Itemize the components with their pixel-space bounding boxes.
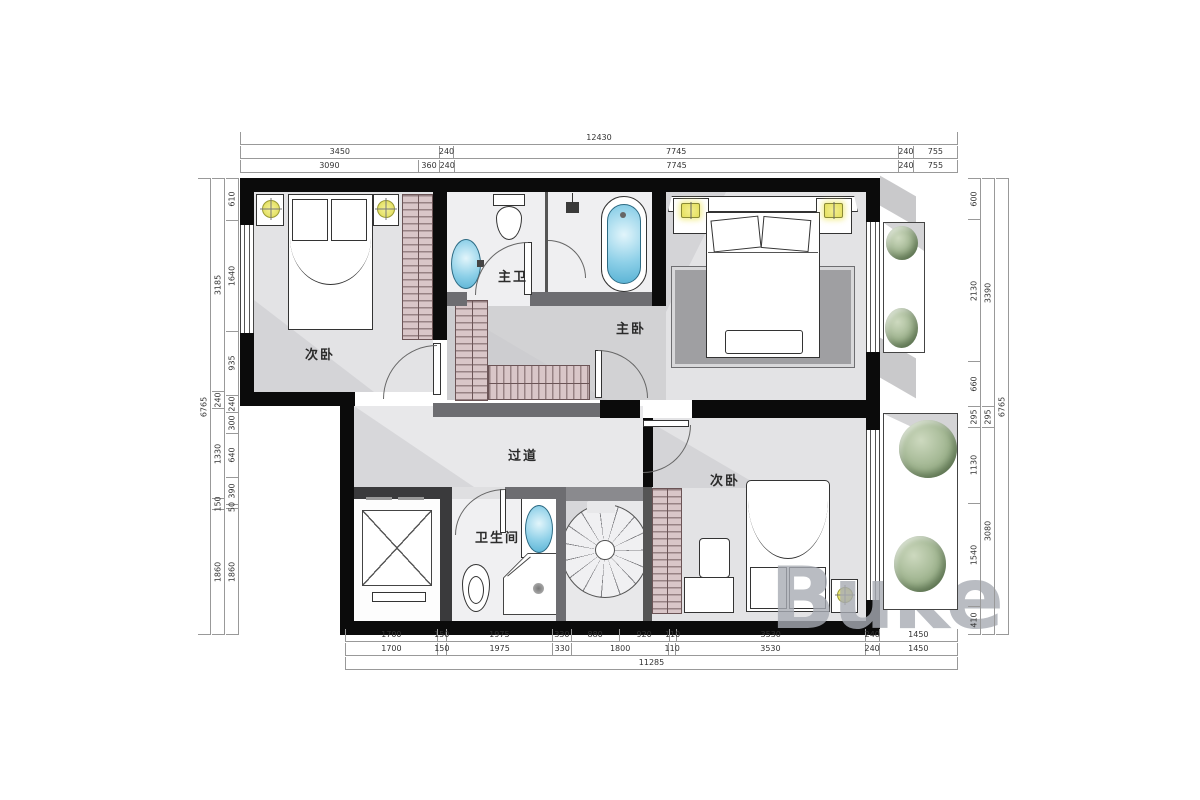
shower-hose: [572, 193, 573, 203]
wall-segment: [866, 352, 880, 430]
dimension-value: 110: [665, 644, 680, 653]
dimension-value: 12430: [586, 133, 611, 142]
dimension-value: 11285: [639, 658, 664, 667]
dimension-value: 1450: [908, 630, 928, 639]
dimension-segment: 1330: [212, 408, 224, 498]
dimension-segment: 330: [552, 629, 571, 641]
dimension-segment: 3390: [982, 178, 994, 406]
dimension-segment: 3530: [676, 629, 865, 641]
wall-segment: [556, 487, 566, 621]
dimension-value: 3080: [984, 521, 993, 541]
dimension-value: 640: [228, 448, 237, 463]
dimension-value: 110: [665, 630, 680, 639]
dimension-value: 240: [864, 644, 879, 653]
chair: [699, 538, 730, 578]
dimension-segment: 920: [619, 629, 669, 641]
wall-segment: [240, 392, 355, 406]
dimension-value: 1330: [214, 443, 223, 463]
room-label-bedroom1: 次卧: [305, 344, 335, 363]
elevator-door-sill: [398, 497, 424, 500]
dim-left-total: 6765: [198, 178, 211, 635]
dimension-segment: 3090: [240, 160, 418, 172]
pillow: [761, 216, 812, 252]
dimension-value: 330: [554, 630, 569, 639]
dimension-value: 1800: [610, 644, 630, 653]
dimension-segment: 11285: [345, 657, 957, 669]
dimension-segment: 240: [898, 160, 913, 172]
dimension-segment: 240: [439, 146, 454, 158]
dimension-value: 1860: [214, 562, 223, 582]
dimension-value: 410: [970, 613, 979, 628]
dimension-value: 330: [555, 644, 570, 653]
plant-icon: [885, 308, 918, 348]
dimension-value: 6765: [200, 396, 209, 416]
toilet-bowl: [468, 576, 484, 604]
exterior-shadow: [880, 176, 916, 227]
plant-icon: [899, 420, 957, 478]
wall-segment: [240, 333, 254, 392]
wall-segment: [433, 192, 447, 340]
dimension-value: 3530: [761, 630, 781, 639]
wall-segment: [692, 400, 880, 418]
dimension-segment: 150: [212, 498, 224, 509]
dimension-segment: 640: [226, 433, 238, 477]
room-label-hallway: 过道: [508, 445, 538, 464]
room-label-master-bedroom: 主卧: [616, 318, 646, 337]
window: [240, 225, 254, 333]
table-lamp-icon: [681, 203, 700, 218]
dimension-value: 2130: [970, 280, 979, 300]
dimension-segment: 1800: [571, 643, 668, 655]
dimension-value: 240: [898, 161, 913, 170]
dim-top-total: 12430: [240, 132, 958, 145]
room-label-bedroom2: 次卧: [710, 470, 740, 489]
dimension-value: 7745: [666, 147, 686, 156]
elevator-wall: [440, 487, 452, 621]
dimension-value: 755: [928, 147, 943, 156]
dimension-segment: 600: [968, 178, 980, 219]
dimension-value: 240: [865, 630, 880, 639]
dimension-value: 1975: [489, 630, 509, 639]
dimension-segment: 7745: [453, 146, 898, 158]
room-label-bathroom: 卫生间: [475, 527, 520, 546]
dim-bottom-mid: 17001501975330180011035302401450: [345, 643, 958, 656]
dimension-segment: 150: [437, 629, 446, 641]
shower-drain-icon: [533, 583, 544, 594]
dimension-value: 7745: [666, 161, 686, 170]
dimension-value: 240: [440, 161, 455, 170]
dimension-segment: 295: [982, 406, 994, 427]
dim-bottom-total: 11285: [345, 657, 958, 670]
dim-right-mid: 33902953080: [982, 178, 995, 635]
wall-segment: [505, 487, 556, 499]
staircase-center-post: [595, 540, 615, 560]
wardrobe: [402, 194, 433, 340]
dimension-segment: 880: [571, 629, 619, 641]
dimension-segment: 610: [226, 178, 238, 220]
floor-plan-canvas: 12430 34502407745240755 3090360240774524…: [0, 0, 1200, 800]
dimension-segment: 300: [226, 412, 238, 433]
sheet-fold-line: [708, 252, 818, 253]
dimension-segment: 330: [552, 643, 571, 655]
dimension-value: 1700: [381, 630, 401, 639]
shower-head-icon: [566, 202, 579, 213]
wardrobe: [652, 488, 682, 614]
wall-segment: [866, 192, 880, 222]
wall-segment: [643, 487, 652, 621]
dimension-segment: 6765: [996, 178, 1008, 634]
dimension-segment: 410: [968, 606, 980, 634]
dimension-value: 1640: [228, 266, 237, 286]
dimension-value: 1540: [970, 545, 979, 565]
dimension-value: 660: [970, 376, 979, 391]
pillow: [292, 199, 328, 241]
dimension-segment: 1860: [226, 508, 238, 634]
toilet-tank: [493, 194, 525, 206]
dimension-segment: 3080: [982, 427, 994, 634]
plant-icon: [886, 226, 918, 260]
pillow: [710, 216, 761, 253]
ceiling-lamp-icon: [377, 200, 395, 218]
table-lamp-icon: [824, 203, 843, 218]
dimension-value: 755: [928, 161, 943, 170]
dimension-value: 300: [228, 415, 237, 430]
wall-segment: [530, 292, 652, 306]
dimension-value: 3390: [984, 282, 993, 302]
dimension-segment: 295: [968, 406, 980, 427]
dimension-segment: 755: [913, 146, 957, 158]
dimension-segment: 2130: [968, 219, 980, 361]
wall-segment: [340, 406, 354, 621]
dimension-value: 295: [970, 409, 979, 424]
dimension-segment: 6765: [198, 178, 210, 634]
dimension-value: 150: [434, 630, 449, 639]
bed-bench: [725, 330, 803, 354]
dimension-value: 610: [228, 192, 237, 207]
dimension-value: 3450: [330, 147, 350, 156]
wall-segment: [433, 403, 603, 417]
wall-segment: [447, 292, 467, 306]
dimension-value: 3090: [319, 161, 339, 170]
dim-right-inner: 600213066029511301540410: [968, 178, 981, 635]
dimension-segment: 12430: [240, 132, 957, 144]
wall-segment: [240, 192, 254, 225]
dimension-value: 390: [228, 483, 237, 498]
dimension-segment: 360: [418, 160, 440, 172]
dimension-value: 360: [421, 161, 436, 170]
stair-landing-wall: [566, 487, 643, 501]
dimension-value: 1450: [908, 644, 928, 653]
dimension-segment: 3530: [675, 643, 865, 655]
dimension-value: 150: [434, 644, 449, 653]
dimension-segment: 110: [669, 629, 676, 641]
dimension-value: 6765: [998, 396, 1007, 416]
dimension-segment: 240: [226, 395, 238, 412]
dimension-segment: 1130: [968, 427, 980, 503]
dimension-segment: 1700: [345, 643, 437, 655]
dimension-value: 935: [228, 356, 237, 371]
dim-top-inner: 30903602407745240755: [240, 160, 958, 173]
balcony-door-window: [866, 222, 880, 352]
dim-right-total: 6765: [996, 178, 1009, 635]
dimension-segment: 1640: [226, 220, 238, 331]
dimension-segment: 3185: [212, 178, 224, 391]
elevator-door-sill: [366, 497, 392, 500]
dimension-segment: 1975: [446, 629, 552, 641]
dimension-segment: 755: [913, 160, 957, 172]
dim-left-inner: 6101640935240300640390501860: [226, 178, 239, 635]
dimension-value: 240: [228, 396, 237, 411]
dimension-segment: 660: [968, 361, 980, 406]
ceiling-lamp-icon: [262, 200, 280, 218]
cabinet: [684, 577, 734, 613]
dimension-value: 3530: [760, 644, 780, 653]
washbasin: [525, 505, 553, 553]
dimension-segment: 240: [865, 643, 879, 655]
dimension-segment: 1860: [212, 509, 224, 634]
dimension-segment: 1975: [446, 643, 553, 655]
dimension-segment: 935: [226, 331, 238, 395]
dimension-value: 880: [587, 630, 602, 639]
wardrobe: [488, 365, 590, 400]
dimension-segment: 240: [439, 160, 454, 172]
dimension-value: 1700: [381, 644, 401, 653]
dimension-value: 920: [636, 630, 651, 639]
wall-segment: [652, 192, 666, 306]
dimension-segment: 390: [226, 477, 238, 504]
dimension-segment: 240: [898, 146, 913, 158]
dimension-value: 600: [970, 191, 979, 206]
dim-top-mid: 34502407745240755: [240, 146, 958, 159]
dimension-segment: 1450: [879, 629, 957, 641]
dimension-segment: 1450: [879, 643, 957, 655]
dimension-segment: 3450: [240, 146, 439, 158]
dimension-value: 1975: [489, 644, 509, 653]
dimension-value: 240: [898, 147, 913, 156]
dimension-segment: 50: [226, 504, 238, 508]
dimension-segment: 110: [668, 643, 675, 655]
dimension-segment: 1540: [968, 503, 980, 606]
plant-icon: [894, 536, 946, 592]
dimension-value: 295: [984, 409, 993, 424]
elevator-counterweight: [372, 592, 426, 602]
dimension-segment: 150: [437, 643, 446, 655]
dimension-value: 240: [439, 147, 454, 156]
wall-segment: [600, 400, 640, 418]
dimension-segment: 240: [865, 629, 879, 641]
room-label-master-bathroom: 主卫: [498, 266, 528, 285]
elevator: [362, 510, 432, 586]
pillow: [331, 199, 367, 241]
drain-icon: [620, 212, 626, 218]
dimension-value: 1860: [228, 561, 237, 581]
dimension-segment: 1700: [345, 629, 437, 641]
dimension-value: 240: [214, 393, 223, 408]
dim-left-mid: 318524013301501860: [212, 178, 225, 635]
dim-bottom-inner: 1700150197533088092011035302401450: [345, 629, 958, 642]
staircase-entry-notch: [587, 502, 615, 513]
dimension-value: 3185: [214, 275, 223, 295]
dimension-value: 1130: [970, 455, 979, 475]
dimension-segment: 7745: [454, 160, 898, 172]
dimension-value: 150: [214, 496, 223, 511]
dimension-segment: 240: [212, 391, 224, 408]
wall-segment: [240, 178, 880, 192]
dimension-value: 50: [228, 501, 237, 511]
wardrobe: [455, 300, 488, 401]
